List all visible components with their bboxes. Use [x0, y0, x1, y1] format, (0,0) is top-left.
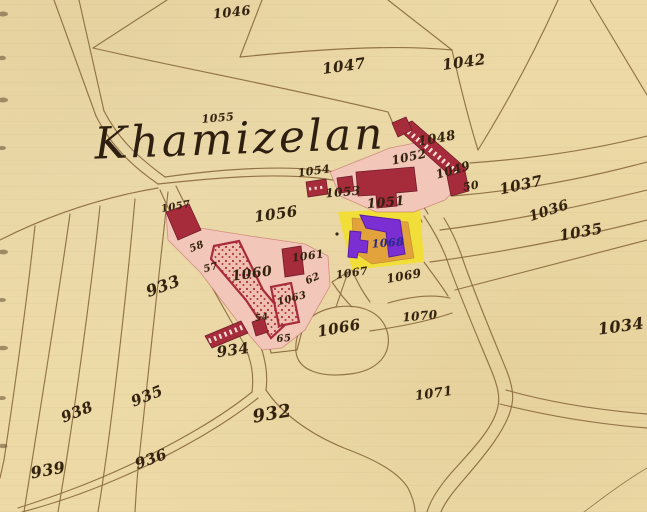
parcel-label-1049: 1049	[434, 158, 472, 181]
parcel-label-1034: 1034	[597, 313, 646, 338]
parcel-label-935: 935	[128, 382, 165, 411]
parcel-label-1070: 1070	[402, 307, 438, 324]
parcel-label-58: 58	[188, 239, 206, 255]
parcel-label-936: 936	[133, 445, 170, 473]
parcel-label-1036: 1036	[527, 197, 571, 225]
parcel-label-1061: 1061	[291, 247, 325, 264]
parcel-label-932: 932	[251, 400, 293, 427]
parcel-label-1047: 1047	[321, 54, 367, 78]
parcel-label-1066: 1066	[316, 315, 362, 340]
parcel-label-1057: 1057	[160, 199, 191, 215]
parcel-label-1053: 1053	[325, 183, 361, 200]
parcel-label-1054: 1054	[297, 162, 331, 179]
parcel-label-1035: 1035	[558, 219, 604, 244]
parcel-label-1056: 1056	[253, 202, 299, 226]
parcel-label-1069: 1069	[385, 266, 422, 286]
parcel-label-54: 54	[254, 312, 269, 324]
parcel-label-933: 933	[143, 271, 182, 301]
map-canvas[interactable]: 1046104710421055104810521049501054105310…	[0, 0, 647, 512]
parcel-label-1037: 1037	[498, 172, 545, 199]
parcel-label-1067: 1067	[335, 264, 369, 281]
parcel-label-934: 934	[216, 339, 251, 361]
parcel-label-1060: 1060	[231, 263, 274, 285]
parcel-label-62: 62	[304, 271, 322, 287]
parcel-label-50: 50	[462, 178, 480, 194]
parcel-label-1051: 1051	[366, 194, 405, 212]
parcel-label-1071: 1071	[414, 384, 454, 404]
parcel-label-1042: 1042	[441, 50, 487, 74]
parcel-label-1046: 1046	[212, 4, 252, 23]
label-layer: 1046104710421055104810521049501054105310…	[0, 0, 647, 512]
parcel-label-57: 57	[202, 261, 219, 275]
parcel-label-938: 938	[58, 398, 95, 427]
parcel-label-939: 939	[29, 458, 67, 483]
parcel-label-1063: 1063	[276, 290, 308, 308]
parcel-label-1068: 1068	[371, 235, 404, 250]
town-name-label: Khamizelan	[94, 108, 387, 169]
parcel-label-1052: 1052	[390, 146, 428, 167]
parcel-label-65: 65	[276, 333, 292, 345]
